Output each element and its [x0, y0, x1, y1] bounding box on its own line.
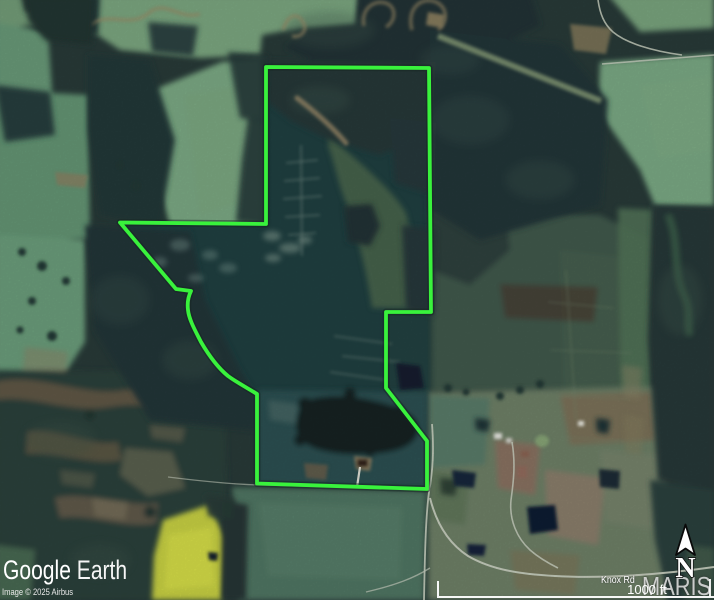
svg-text:N: N — [675, 553, 695, 584]
svg-text:1000 ft: 1000 ft — [627, 582, 667, 597]
